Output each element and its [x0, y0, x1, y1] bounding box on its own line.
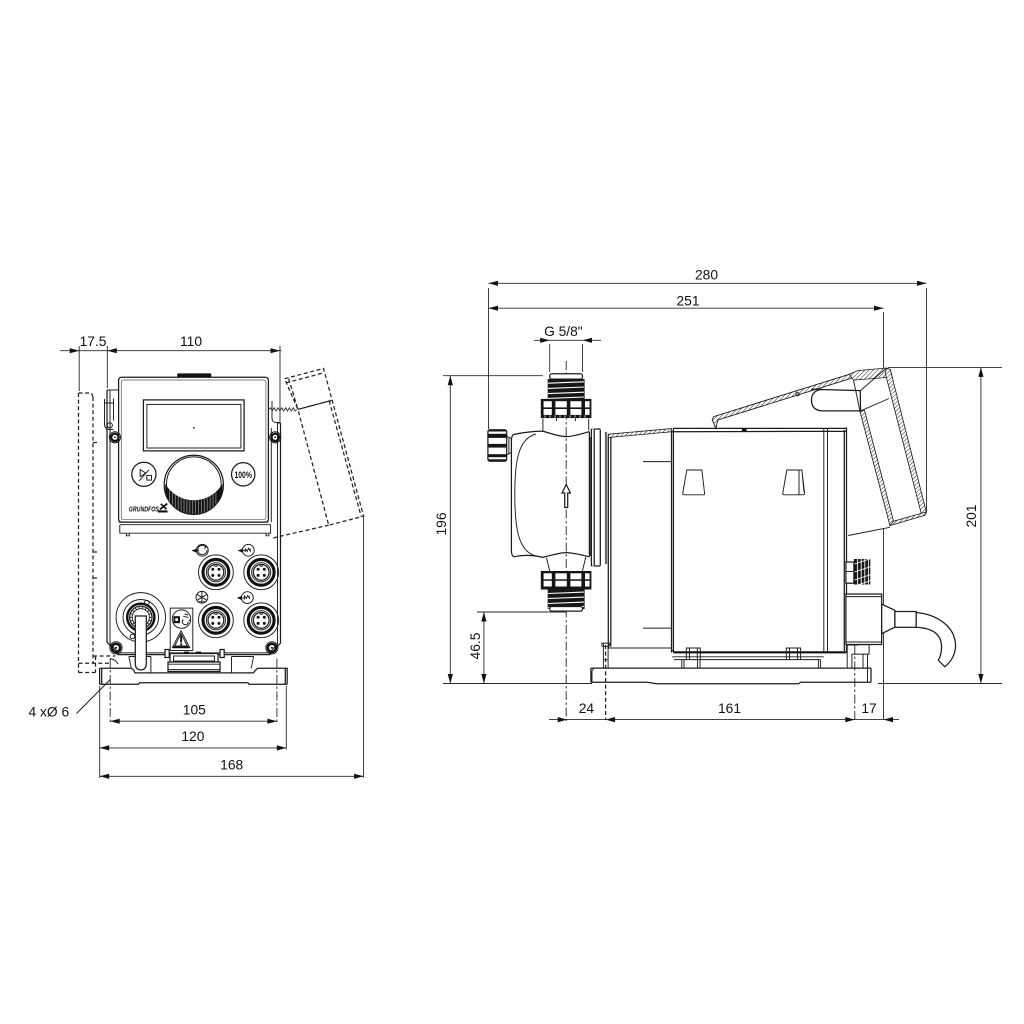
svg-text:161: 161 [718, 701, 741, 716]
svg-text:17.5: 17.5 [80, 334, 107, 349]
svg-text:G 5/8": G 5/8" [544, 324, 583, 339]
svg-text:251: 251 [676, 294, 699, 309]
svg-text:24: 24 [579, 701, 595, 716]
svg-text:168: 168 [220, 758, 243, 773]
svg-text:4 xØ 6: 4 xØ 6 [29, 705, 70, 720]
svg-text:280: 280 [695, 268, 718, 283]
svg-text:120: 120 [181, 729, 204, 744]
svg-text:46.5: 46.5 [468, 632, 483, 659]
svg-text:196: 196 [434, 512, 449, 535]
svg-text:105: 105 [183, 703, 206, 718]
svg-text:GRUNDFOS: GRUNDFOS [129, 504, 159, 513]
svg-text:17: 17 [861, 701, 876, 716]
svg-text:201: 201 [964, 504, 979, 527]
svg-text:100%: 100% [234, 470, 252, 480]
svg-text:110: 110 [180, 334, 202, 349]
